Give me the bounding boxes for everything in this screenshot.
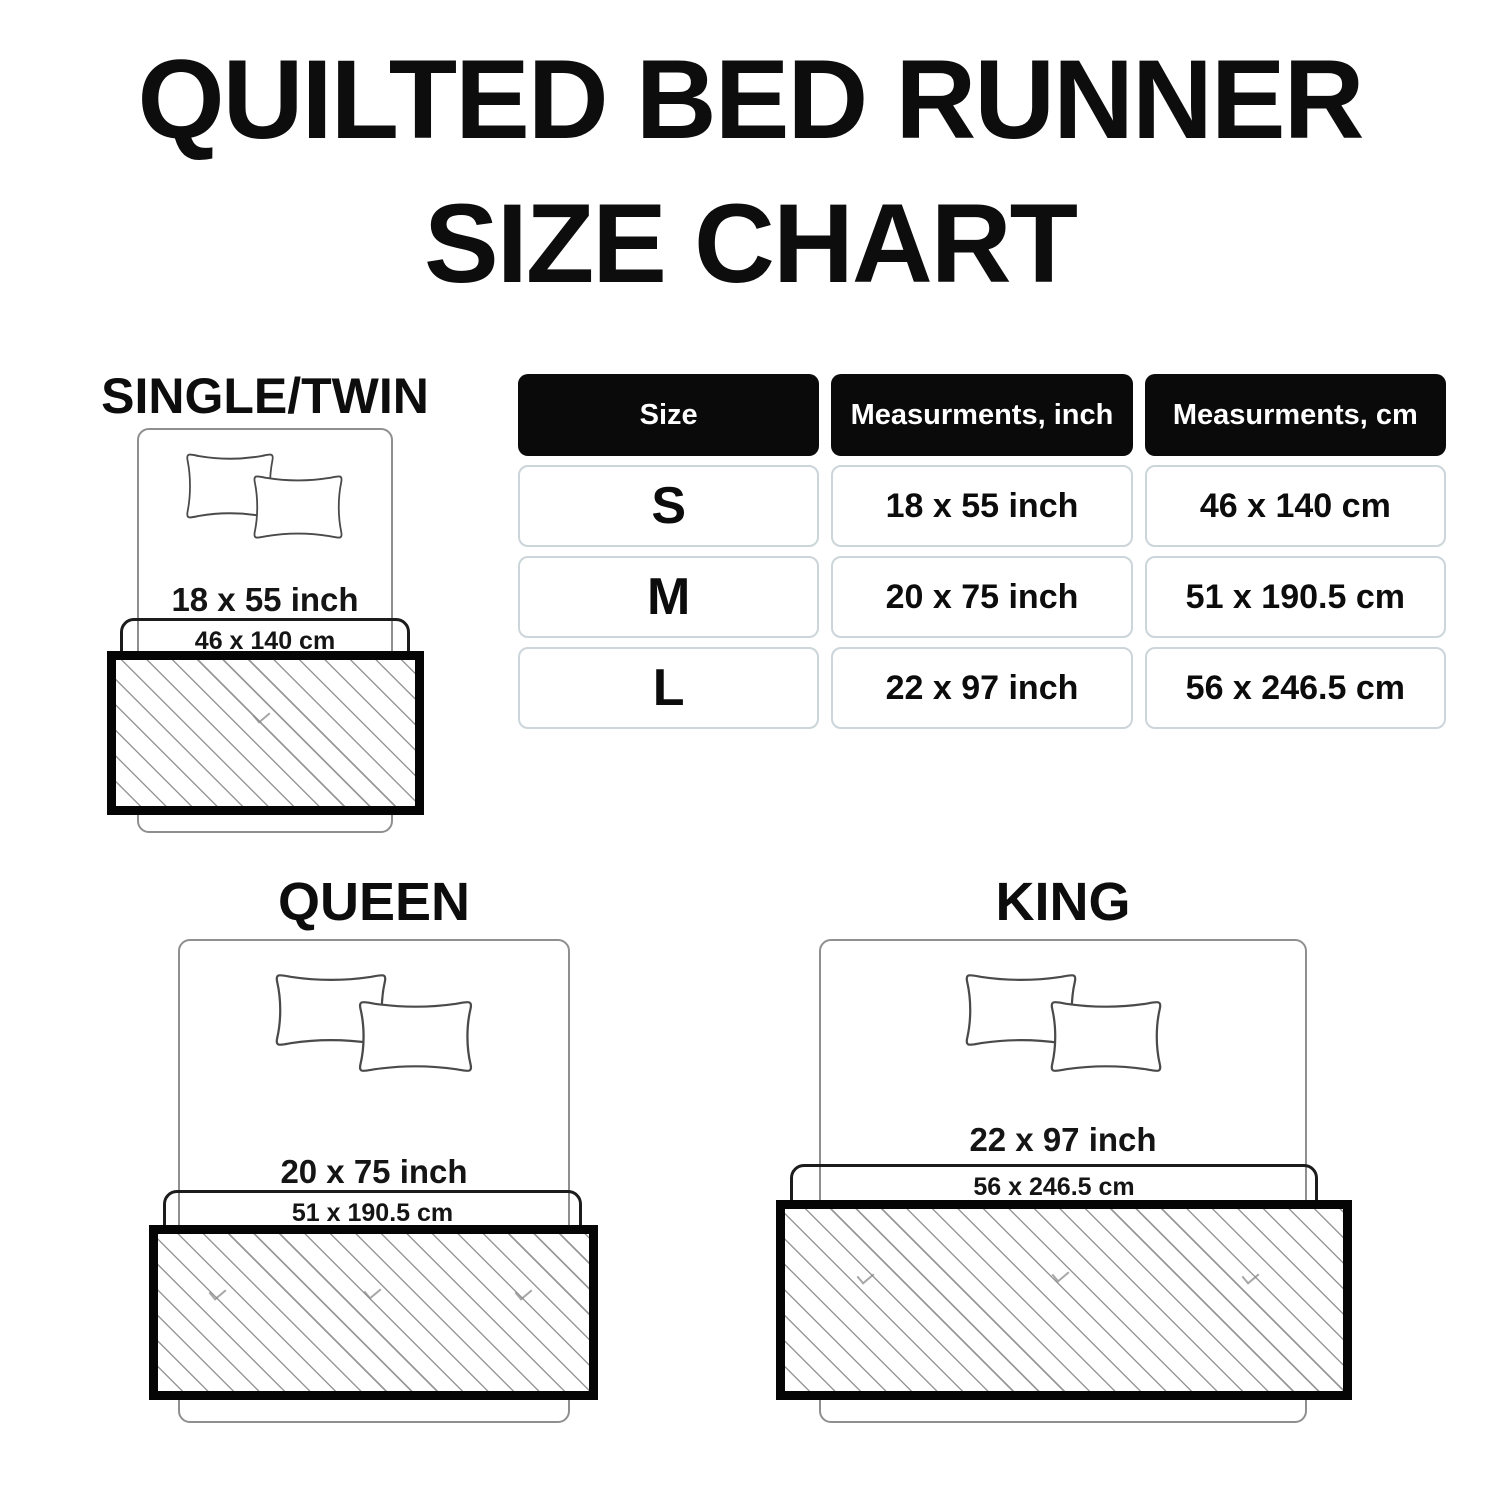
table-cell-inch-m: 20 x 75 inch [831, 556, 1132, 638]
bed-runner-swatch [776, 1200, 1352, 1400]
table-header-cm: Measurments, cm [1145, 374, 1446, 456]
page-title-line1: QUILTED BED RUNNER [0, 28, 1500, 172]
size-table: Size Measurments, inch Measurments, cm S… [518, 374, 1446, 729]
stitch-mark [514, 1284, 532, 1301]
inch-dimension-label: 20 x 75 inch [178, 1152, 570, 1192]
pillow-icon [245, 470, 351, 544]
inch-dimension-label: 18 x 55 inch [137, 580, 393, 620]
bed-runner-swatch [107, 651, 424, 815]
stitch-mark [208, 1284, 226, 1301]
table-cell-cm-s: 46 x 140 cm [1145, 465, 1446, 547]
table-cell-inch-s: 18 x 55 inch [831, 465, 1132, 547]
size-chart-page: QUILTED BED RUNNER SIZE CHART Size Measu… [0, 0, 1500, 1500]
inch-dimension-label: 22 x 97 inch [819, 1120, 1307, 1160]
table-header-size: Size [518, 374, 819, 456]
diagram-king-title: KING [843, 872, 1283, 932]
pillow-icon [348, 995, 483, 1078]
stitch-mark [363, 1282, 381, 1299]
page-title-line2: SIZE CHART [0, 172, 1500, 316]
stitch-mark [1241, 1267, 1259, 1284]
table-cell-cm-l: 56 x 246.5 cm [1145, 647, 1446, 729]
table-cell-size-m: M [518, 556, 819, 638]
table-cell-size-l: L [518, 647, 819, 729]
stitch-mark [252, 706, 270, 723]
table-cell-size-s: S [518, 465, 819, 547]
page-title: QUILTED BED RUNNER SIZE CHART [0, 28, 1500, 316]
diagram-single-twin-title: SINGLE/TWIN [45, 368, 485, 424]
stitch-mark [856, 1267, 874, 1284]
bed-runner-swatch [149, 1225, 598, 1400]
stitch-mark [1051, 1265, 1069, 1282]
table-cell-inch-l: 22 x 97 inch [831, 647, 1132, 729]
table-header-inch: Measurments, inch [831, 374, 1132, 456]
pillow-icon [1040, 995, 1172, 1078]
diagram-queen-title: QUEEN [154, 872, 594, 932]
table-cell-cm-m: 51 x 190.5 cm [1145, 556, 1446, 638]
